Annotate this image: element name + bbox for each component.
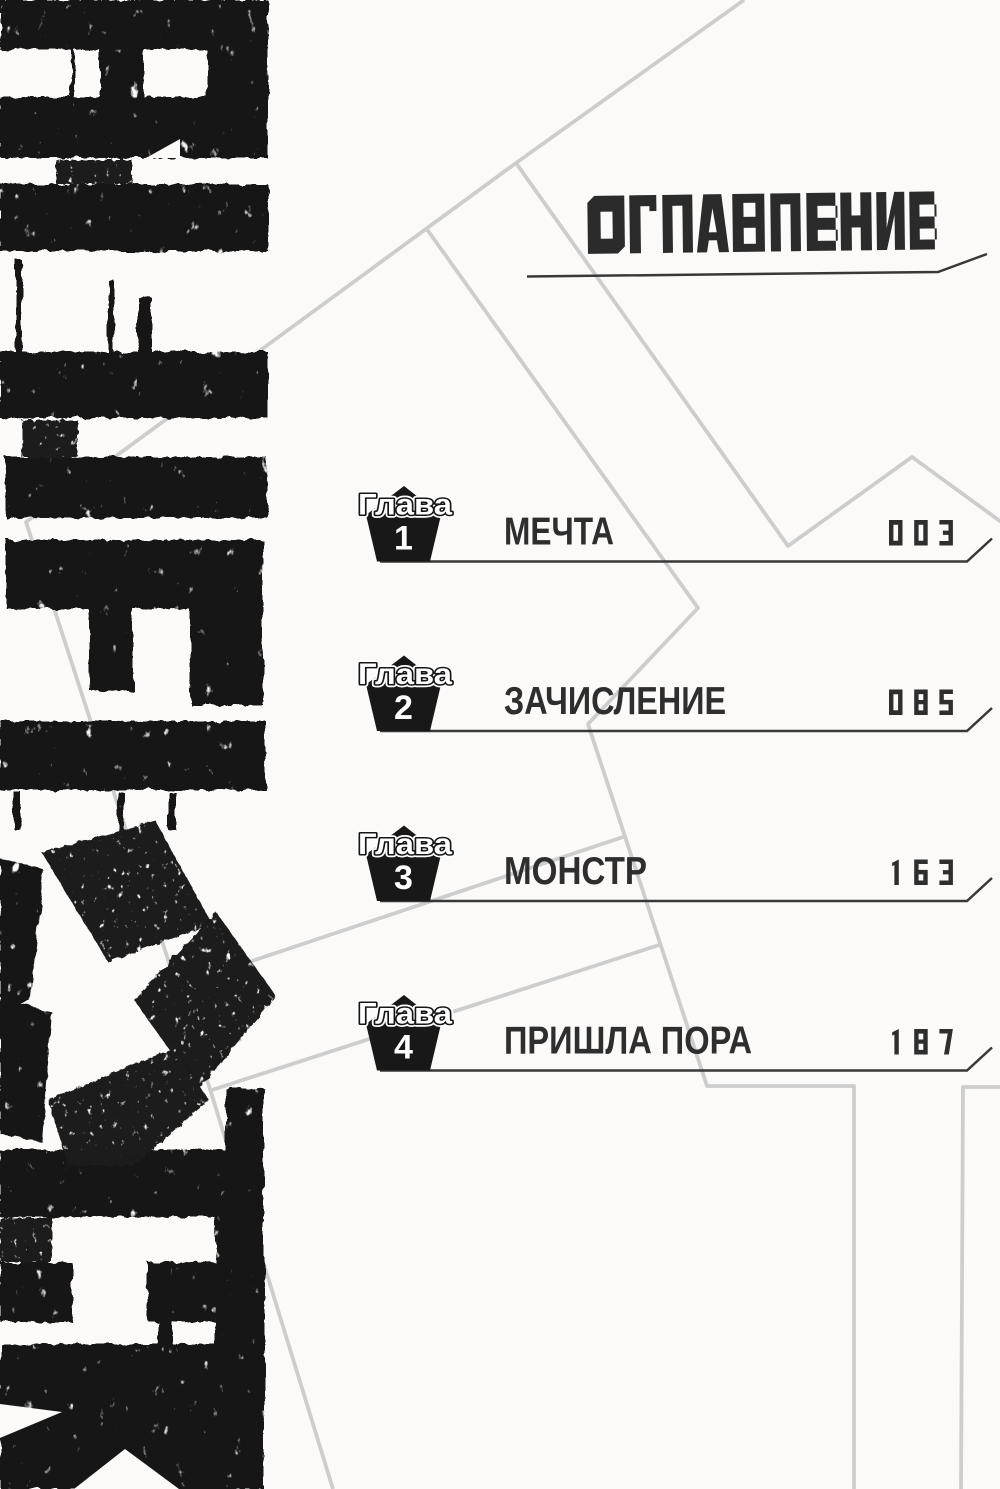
- svg-text:ЗАЧИСЛЕНИЕ: ЗАЧИСЛЕНИЕ: [504, 680, 726, 723]
- svg-text:1: 1: [394, 520, 413, 558]
- svg-text:МОНСТР: МОНСТР: [504, 850, 647, 893]
- svg-text:МЕЧТА: МЕЧТА: [504, 511, 614, 554]
- svg-text:4: 4: [394, 1029, 413, 1067]
- svg-text:ПРИШЛА ПОРА: ПРИШЛА ПОРА: [504, 1020, 752, 1063]
- svg-text:3: 3: [394, 859, 413, 897]
- svg-text:2: 2: [394, 689, 413, 727]
